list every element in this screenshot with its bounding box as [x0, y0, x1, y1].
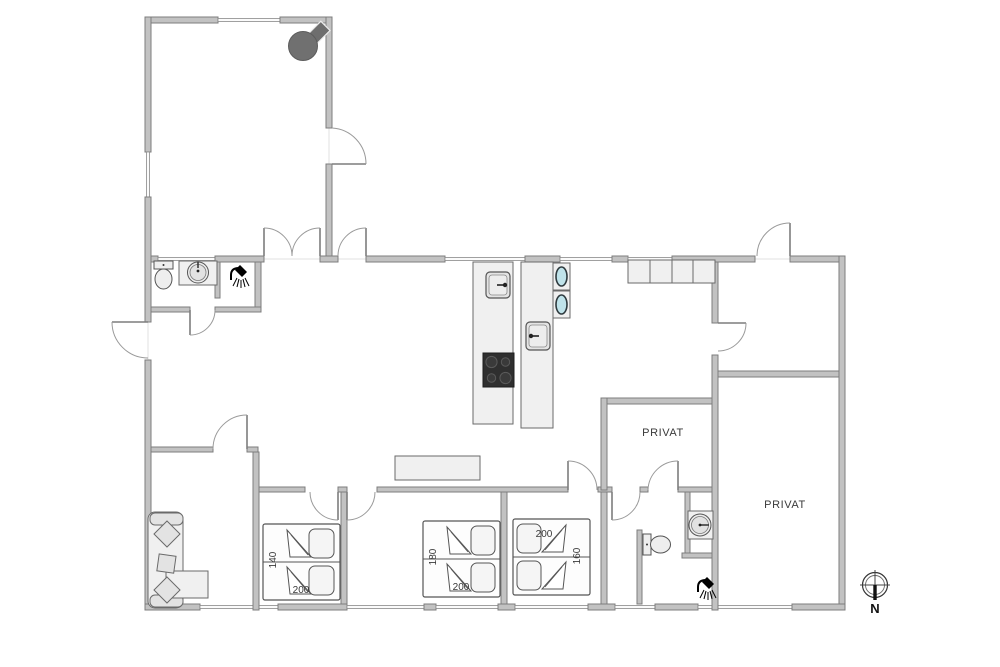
bed-length-label: 200: [536, 529, 553, 540]
wardrobe: [628, 260, 715, 283]
wall: [253, 452, 259, 610]
wall: [320, 256, 338, 262]
door: [347, 492, 375, 520]
bed-length-label: 200: [293, 585, 310, 596]
double-basin-icon: [553, 263, 570, 318]
window: [347, 606, 424, 609]
door: [718, 323, 746, 351]
compass-rose: N: [860, 570, 890, 616]
wall: [792, 604, 845, 610]
wall: [145, 17, 151, 152]
wall: [424, 604, 436, 610]
wall: [525, 256, 560, 262]
window: [515, 606, 588, 609]
window: [147, 152, 150, 197]
door: [757, 223, 790, 256]
door: [112, 322, 148, 358]
wall: [612, 256, 628, 262]
door: [338, 228, 366, 256]
wall: [151, 447, 213, 452]
wall: [682, 553, 712, 558]
wall: [790, 256, 845, 262]
wood-stove-icon: [289, 21, 331, 60]
door: [190, 310, 215, 335]
bathroom-1: [154, 261, 249, 289]
wall: [255, 262, 261, 312]
wall: [338, 487, 347, 492]
wall: [366, 256, 445, 262]
sink-icon: [688, 511, 713, 539]
privat-label-1: PRIVAT: [642, 427, 684, 439]
window: [158, 258, 215, 261]
door: [213, 415, 247, 449]
floor-plan-canvas: 140 200 180 200 200 160: [0, 0, 1000, 667]
north-label: N: [870, 601, 879, 616]
wall: [341, 492, 347, 604]
window: [436, 606, 498, 609]
kitchen: [473, 262, 570, 428]
bed-width-label: 140: [268, 551, 279, 568]
wall: [712, 371, 839, 377]
window: [218, 19, 280, 22]
window: [615, 606, 655, 609]
wall: [640, 487, 648, 492]
wall: [839, 256, 845, 610]
bed-1: 140 200: [263, 524, 340, 600]
bed-width-label: 160: [572, 547, 583, 564]
wall: [498, 604, 515, 610]
bed-3: 200 160: [513, 519, 590, 595]
window: [445, 258, 525, 261]
door: [310, 492, 338, 520]
wall: [601, 398, 712, 404]
toilet-icon: [154, 261, 173, 289]
wall: [145, 197, 151, 322]
door: [568, 461, 597, 490]
wall: [377, 487, 568, 492]
window: [560, 258, 612, 261]
wall: [247, 447, 258, 452]
wall: [215, 256, 264, 262]
wall: [655, 604, 698, 610]
wall: [588, 604, 615, 610]
wall: [215, 307, 261, 312]
shower-icon: [231, 265, 249, 288]
toilet-icon: [643, 534, 671, 555]
bed-width-label: 180: [428, 548, 439, 565]
wall: [637, 530, 642, 604]
sofa-cushion: [157, 554, 176, 573]
wall: [151, 307, 190, 312]
floor-plan-svg: 140 200 180 200 200 160: [0, 0, 1000, 667]
wall: [326, 164, 332, 262]
door: [612, 492, 640, 520]
cooktop-icon: [483, 353, 514, 387]
door: [332, 128, 366, 164]
wall: [280, 17, 332, 23]
kitchen-sink-icon: [486, 272, 510, 298]
wall: [145, 17, 218, 23]
bed-length-label: 200: [453, 582, 470, 593]
wall: [278, 604, 347, 610]
wall: [501, 492, 507, 604]
wall: [259, 487, 305, 492]
wall: [601, 398, 607, 490]
wall: [712, 355, 718, 610]
kitchen-sink-icon: [526, 322, 550, 350]
wall: [601, 492, 607, 604]
bed-2: 180 200: [423, 521, 500, 597]
privat-label-2: PRIVAT: [764, 499, 806, 511]
sink-icon: [179, 261, 217, 285]
sofa: [148, 512, 208, 608]
double-door: [264, 228, 320, 256]
sideboard: [395, 456, 480, 480]
window: [200, 606, 278, 609]
door: [648, 461, 678, 490]
